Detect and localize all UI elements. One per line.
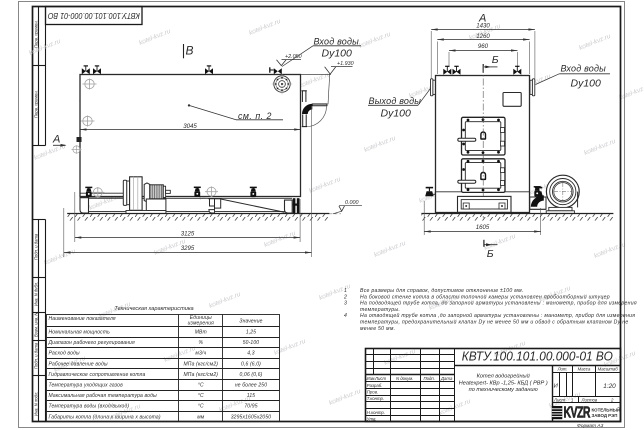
svg-text:kotel-kvz.ru: kotel-kvz.ru	[373, 240, 407, 259]
svg-text:Формат А3: Формат А3	[577, 423, 604, 429]
svg-text:1260: 1260	[476, 33, 490, 40]
svg-text:kotel-kvz.ru: kotel-kvz.ru	[358, 31, 392, 50]
svg-text:Лист: Лист	[553, 397, 565, 402]
svg-text:kotel-kvz.ru: kotel-kvz.ru	[383, 348, 417, 367]
svg-text:Выход воды: Выход воды	[369, 96, 422, 106]
svg-text:kotel-kvz.ru: kotel-kvz.ru	[263, 230, 297, 249]
svg-text:Инв. N дубл.: Инв. N дубл.	[34, 282, 39, 306]
svg-text:не более 250: не более 250	[235, 383, 267, 389]
svg-text:Габариты котла (длина х ширина: Габариты котла (длина х ширина х высота)	[49, 414, 161, 420]
svg-text:Значение: Значение	[239, 319, 262, 325]
svg-text:Температура уходящих газов: Температура уходящих газов	[49, 383, 124, 389]
svg-text:%: %	[198, 340, 203, 346]
svg-text:Пров.: Пров.	[367, 390, 378, 395]
svg-text:kotel-kvz.ru: kotel-kvz.ru	[43, 248, 77, 267]
svg-text:kotel-kvz.ru: kotel-kvz.ru	[438, 398, 472, 417]
svg-text:Dy100: Dy100	[381, 107, 412, 119]
svg-text:Перв. примен.: Перв. примен.	[34, 20, 39, 48]
svg-text:°С: °С	[198, 393, 204, 399]
svg-text:Температура воды (вход/выход): Температура воды (вход/выход)	[49, 404, 130, 410]
svg-text:3045: 3045	[183, 123, 197, 130]
svg-text:Диапазон рабочего регулировани: Диапазон рабочего регулирования	[48, 340, 135, 346]
svg-text:Максимальная рабочая температу: Максимальная рабочая температура воды	[49, 393, 158, 399]
svg-text:kotel-kvz.ru: kotel-kvz.ru	[298, 71, 332, 90]
svg-text:Подп.: Подп.	[424, 376, 435, 381]
svg-text:мм: мм	[197, 414, 205, 420]
svg-text:kotel-kvz.ru: kotel-kvz.ru	[248, 18, 282, 37]
svg-text:Номинальная мощность: Номинальная мощность	[49, 330, 111, 336]
svg-text:Наименование показателя: Наименование показателя	[49, 316, 116, 322]
svg-text:3295: 3295	[181, 245, 195, 252]
svg-text:1,25: 1,25	[246, 330, 256, 336]
svg-text:см. п. 2: см. п. 2	[238, 111, 272, 121]
svg-text:kotel-kvz.ru: kotel-kvz.ru	[138, 28, 172, 47]
svg-text:Вход воды: Вход воды	[561, 63, 607, 73]
svg-text:Б: Б	[492, 54, 499, 66]
svg-text:температуры, предохранительный: температуры, предохранительный клапан Dу…	[360, 319, 628, 326]
svg-text:менее 50 мм.: менее 50 мм.	[360, 326, 395, 332]
svg-text:Инв. N подл.: Инв. N подл.	[34, 392, 39, 416]
svg-text:Рабочее давление воды: Рабочее давление воды	[49, 361, 108, 367]
svg-text:Утв.: Утв.	[367, 417, 377, 422]
svg-text:1430: 1430	[476, 22, 490, 29]
svg-text:Листов: Листов	[581, 397, 598, 402]
svg-text:1605: 1605	[476, 224, 490, 231]
svg-text:Т.контр.: Т.контр.	[367, 396, 384, 401]
svg-text:Дата: Дата	[440, 376, 453, 381]
svg-text:3125: 3125	[181, 231, 195, 238]
svg-text:Б: Б	[487, 248, 494, 260]
svg-text:kotel-kvz.ru: kotel-kvz.ru	[578, 33, 612, 52]
svg-text:2: 2	[343, 294, 347, 300]
svg-text:Н.контр.: Н.контр.	[367, 410, 385, 415]
svg-text:115: 115	[247, 393, 255, 399]
svg-text:Котел водогрейный: Котел водогрейный	[477, 372, 530, 379]
svg-text:kotel-kvz.ru: kotel-kvz.ru	[583, 138, 617, 157]
svg-text:0.000: 0.000	[345, 200, 359, 206]
svg-text:температуры.: температуры.	[360, 307, 400, 313]
svg-text:Техническая характеристика: Техническая характеристика	[114, 306, 193, 312]
svg-text:2: 2	[610, 397, 614, 402]
svg-text:Гидравлическое сопротивление к: Гидравлическое сопротивление котла	[49, 372, 146, 378]
svg-text:kotel-kvz.ru: kotel-kvz.ru	[363, 135, 397, 154]
svg-text:kotel-kvz.ru: kotel-kvz.ru	[208, 291, 242, 310]
svg-text:960: 960	[478, 43, 489, 50]
svg-text:по техническому заданию: по техническому заданию	[469, 387, 539, 393]
svg-text:Dy100: Dy100	[571, 77, 602, 89]
svg-text:Лист: Лист	[374, 376, 386, 381]
svg-text:70/95: 70/95	[244, 404, 257, 410]
svg-text:0,06 (0,6): 0,06 (0,6)	[240, 372, 263, 378]
svg-text:На боковой стенке котла в обла: На боковой стенке котла в области топочн…	[360, 293, 610, 300]
svg-text:На отводящей трубе котла ,до з: На отводящей трубе котла ,до запорной ар…	[360, 312, 635, 319]
svg-text:0,6 (6,0): 0,6 (6,0)	[241, 361, 261, 367]
svg-text:КВТУ.100.101.00.000-01 ВО: КВТУ.100.101.00.000-01 ВО	[48, 11, 140, 21]
svg-text:Подп. и дата: Подп. и дата	[34, 342, 39, 369]
svg-text:Heatexpert- КВр -1,25- КБД ( Р: Heatexpert- КВр -1,25- КБД ( РВР )	[459, 380, 548, 386]
svg-text:1: 1	[344, 288, 347, 294]
svg-text:Разраб.: Разраб.	[367, 383, 383, 388]
svg-text:м3/ч: м3/ч	[195, 351, 206, 357]
svg-text:Перв. примен.: Перв. примен.	[34, 90, 39, 118]
svg-text:И: И	[554, 384, 559, 390]
svg-text:KVZR: KVZR	[564, 405, 591, 422]
svg-text:4,3: 4,3	[247, 351, 254, 357]
svg-text:kotel-kvz.ru: kotel-kvz.ru	[328, 388, 362, 407]
svg-text:КВТУ.100.101.00.000-01 ВО: КВТУ.100.101.00.000-01 ВО	[462, 349, 613, 364]
svg-text:1:20: 1:20	[603, 383, 616, 390]
svg-text:измерения: измерения	[188, 321, 215, 327]
svg-text:Все размеры для справок, допус: Все размеры для справок, допустимое откл…	[360, 288, 524, 294]
svg-text:°С: °С	[198, 404, 204, 410]
svg-text:4: 4	[344, 313, 347, 319]
svg-text:Лит.: Лит.	[557, 367, 568, 372]
svg-text:kotel-kvz.ru: kotel-kvz.ru	[308, 176, 342, 195]
svg-text:ЗАВОД РЭП: ЗАВОД РЭП	[592, 413, 618, 418]
svg-text:3: 3	[344, 301, 347, 307]
svg-text:МПа (кгс/см2): МПа (кгс/см2)	[183, 372, 218, 378]
svg-text:N докум.: N докум.	[396, 376, 413, 381]
svg-text:МПа (кгс/см2): МПа (кгс/см2)	[183, 361, 218, 367]
svg-text:3295х1605х2050: 3295х1605х2050	[231, 414, 272, 420]
svg-text:Dy100: Dy100	[322, 48, 353, 60]
svg-text:Вход воды: Вход воды	[314, 36, 360, 46]
svg-text:50-100: 50-100	[243, 340, 260, 346]
svg-text:kotel-kvz.ru: kotel-kvz.ru	[593, 241, 627, 260]
svg-text:°С: °С	[198, 383, 204, 389]
svg-text:А: А	[52, 134, 60, 146]
svg-text:Масса: Масса	[578, 367, 591, 372]
svg-text:kotel-kvz.ru: kotel-kvz.ru	[618, 83, 644, 102]
svg-text:Расход воды: Расход воды	[49, 351, 80, 357]
svg-text:МВт: МВт	[195, 330, 207, 336]
svg-text:Масштаб: Масштаб	[598, 367, 619, 372]
svg-text:Взам. инв. N: Взам. инв. N	[34, 312, 39, 337]
svg-text:В: В	[186, 44, 194, 58]
svg-text:КОТЕЛЬНЫЙ: КОТЕЛЬНЫЙ	[592, 408, 621, 413]
svg-text:Подп. и дата: Подп. и дата	[34, 233, 39, 260]
svg-text:На подводящей трубе котла, д: На подводящей трубе котла, до запорной а…	[360, 300, 637, 307]
